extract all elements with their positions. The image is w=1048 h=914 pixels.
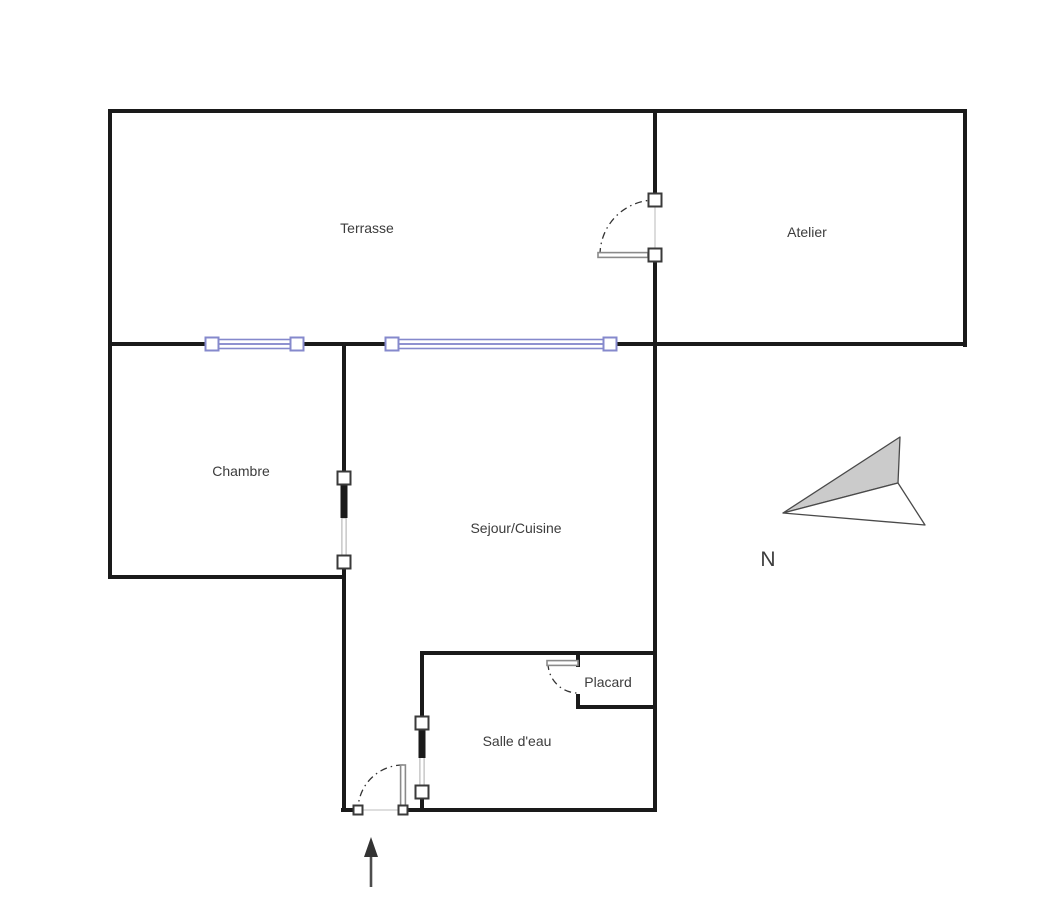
door-track bbox=[342, 518, 346, 556]
room-label-chambre: Chambre bbox=[212, 463, 270, 479]
door-jamb-icon bbox=[649, 194, 662, 207]
north-compass: N bbox=[760, 437, 925, 571]
door-swing-arc-icon bbox=[548, 663, 578, 693]
door-jamb-icon bbox=[649, 249, 662, 262]
window-terrasse-right bbox=[386, 338, 617, 351]
door-track bbox=[420, 757, 424, 786]
window-jamb-icon bbox=[386, 338, 399, 351]
door-leaf bbox=[547, 661, 578, 666]
entrance-arrow-icon bbox=[364, 837, 378, 887]
arrow-head bbox=[364, 837, 378, 857]
door-jamb-icon bbox=[354, 806, 363, 815]
window-jamb-icon bbox=[206, 338, 219, 351]
window-terrasse-left bbox=[206, 338, 304, 351]
door-panel bbox=[341, 483, 348, 518]
door-swing-arc-icon bbox=[600, 200, 655, 255]
swing-door-placard bbox=[547, 661, 578, 693]
door-leaf bbox=[401, 765, 406, 806]
swing-door-entry bbox=[354, 765, 408, 815]
window-jamb-icon bbox=[604, 338, 617, 351]
swing-door-terrasse-atelier bbox=[598, 194, 662, 262]
door-leaf bbox=[598, 253, 648, 258]
door-jamb-icon bbox=[416, 717, 429, 730]
door-panel bbox=[419, 729, 426, 758]
walls bbox=[108, 109, 967, 812]
room-label-salle-deau: Salle d'eau bbox=[483, 733, 552, 749]
door-jamb-icon bbox=[338, 556, 351, 569]
door-openings bbox=[358, 195, 655, 810]
room-label-terrasse: Terrasse bbox=[340, 220, 394, 236]
room-label-sejour-cuisine: Sejour/Cuisine bbox=[470, 520, 561, 536]
floor-plan-drawing: Terrasse Atelier Chambre Sejour/Cuisine … bbox=[0, 0, 1048, 914]
door-jamb-icon bbox=[338, 472, 351, 485]
room-label-placard: Placard bbox=[584, 674, 631, 690]
door-jamb-icon bbox=[416, 786, 429, 799]
sliding-door-chambre bbox=[338, 472, 351, 569]
door-jamb-icon bbox=[399, 806, 408, 815]
floor-plan-canvas: Terrasse Atelier Chambre Sejour/Cuisine … bbox=[0, 0, 1048, 914]
window-jamb-icon bbox=[291, 338, 304, 351]
room-label-atelier: Atelier bbox=[787, 224, 827, 240]
door-swing-arc-icon bbox=[358, 765, 403, 810]
sliding-door-salledeau bbox=[416, 717, 429, 799]
compass-north-label: N bbox=[760, 548, 775, 571]
room-labels: Terrasse Atelier Chambre Sejour/Cuisine … bbox=[212, 220, 827, 749]
